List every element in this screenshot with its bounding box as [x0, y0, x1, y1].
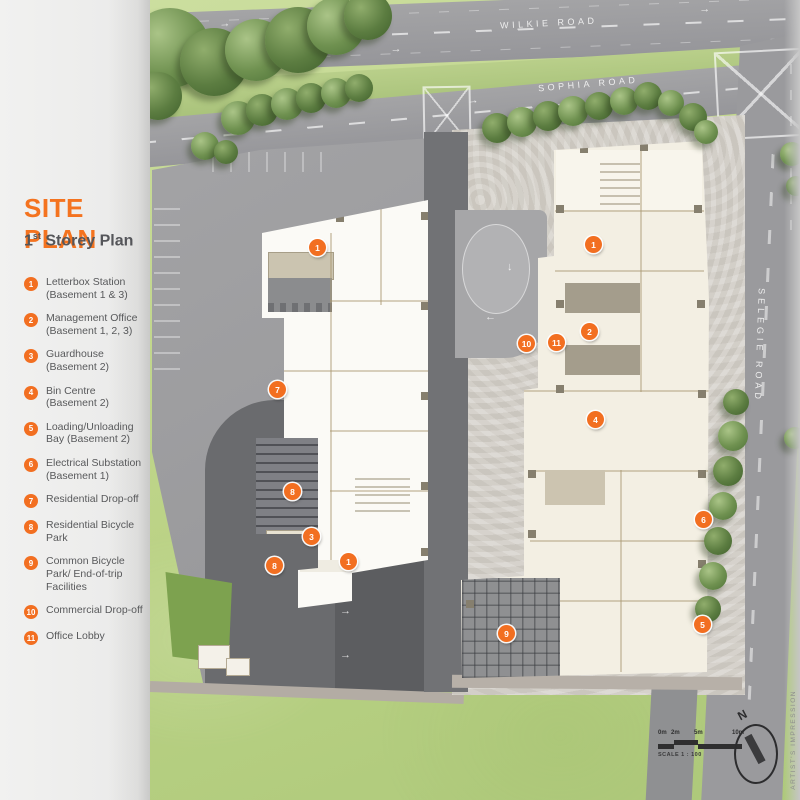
- plan-marker: 8: [266, 557, 283, 574]
- lane-arrow-icon: →: [699, 4, 710, 15]
- plan-marker: 3: [303, 528, 320, 545]
- subtitle-sup: st: [33, 231, 41, 241]
- legend-item: 10Commercial Drop-off: [24, 604, 144, 619]
- page-edge-gradient: [784, 0, 800, 800]
- north-compass: N: [730, 704, 782, 788]
- tree: [713, 456, 743, 486]
- plan-marker: 2: [581, 323, 598, 340]
- legend-badge: 7: [24, 494, 38, 508]
- tree: [704, 527, 732, 555]
- legend-label: Commercial Drop-off: [46, 604, 144, 617]
- legend-badge: 9: [24, 556, 38, 570]
- subtitle-prefix: 1: [24, 232, 33, 249]
- legend-label: Guardhouse (Basement 2): [46, 348, 144, 373]
- legend-label: Electrical Substation (Basement 1): [46, 457, 144, 482]
- legend-label: Letterbox Station (Basement 1 & 3): [46, 276, 144, 301]
- legend-badge: 4: [24, 386, 38, 400]
- plan-marker: 1: [340, 553, 357, 570]
- legend-item: 4Bin Centre (Basement 2): [24, 385, 144, 410]
- legend-item: 1Letterbox Station (Basement 1 & 3): [24, 276, 144, 301]
- tree: [723, 389, 749, 415]
- tree: [558, 96, 588, 126]
- plan-marker: 5: [694, 616, 711, 633]
- legend-item: 5Loading/Unloading Bay (Basement 2): [24, 421, 144, 446]
- legend-label: Residential Drop-off: [46, 493, 144, 506]
- stair-core: [545, 470, 605, 505]
- lift-core: [565, 283, 640, 313]
- legend-label: Common Bicycle Park/ End-of-trip Facilit…: [46, 555, 144, 593]
- scale-tick: 2m: [671, 730, 680, 736]
- legend-label: Loading/Unloading Bay (Basement 2): [46, 421, 144, 446]
- plan-marker: 1: [309, 239, 326, 256]
- tree: [718, 421, 748, 451]
- parking-stalls: [154, 200, 180, 370]
- plan-marker: 8: [284, 483, 301, 500]
- tree: [585, 92, 613, 120]
- legend-badge: 11: [24, 631, 38, 645]
- tree: [694, 120, 718, 144]
- letterbox-canopy: [268, 252, 334, 280]
- plan-marker: 1: [585, 236, 602, 253]
- legend-badge: 5: [24, 422, 38, 436]
- legend-label: Office Lobby: [46, 630, 144, 643]
- legend-label: Residential Bicycle Park: [46, 519, 144, 544]
- legend-item: 6Electrical Substation (Basement 1): [24, 457, 144, 482]
- legend-list: 1Letterbox Station (Basement 1 & 3) 2Man…: [24, 276, 144, 645]
- plan-marker: 10: [518, 335, 535, 352]
- scale-tick: 0m: [658, 730, 667, 736]
- artists-impression-note: ARTIST'S IMPRESSION: [790, 690, 797, 790]
- legend-label: Management Office (Basement 1, 2, 3): [46, 312, 144, 337]
- subtitle-rest: Storey Plan: [41, 232, 133, 249]
- plan-marker: 7: [269, 381, 286, 398]
- lift-core: [565, 345, 640, 375]
- plan-marker: 6: [695, 511, 712, 528]
- legend-badge: 6: [24, 458, 38, 472]
- legend-badge: 1: [24, 277, 38, 291]
- legend-badge: 2: [24, 313, 38, 327]
- legend-badge: 8: [24, 520, 38, 534]
- plan-marker: 4: [587, 411, 604, 428]
- driveway-arrow-icon: ←: [485, 312, 496, 323]
- legend-badge: 3: [24, 349, 38, 363]
- legend-item: 11Office Lobby: [24, 630, 144, 645]
- scale-tick: 5m: [694, 730, 703, 736]
- driveway-arrow-icon: →: [340, 650, 351, 661]
- tree: [345, 74, 373, 102]
- legend-item: 7Residential Drop-off: [24, 493, 144, 508]
- plan-marker: 9: [498, 625, 515, 642]
- tree: [699, 562, 727, 590]
- legend-item: 9Common Bicycle Park/ End-of-trip Facili…: [24, 555, 144, 593]
- plan-marker: 11: [548, 334, 565, 351]
- tree: [709, 492, 737, 520]
- entrance-canopy: [268, 278, 332, 312]
- page-subtitle: 1st Storey Plan: [24, 231, 133, 250]
- legend-label: Bin Centre (Basement 2): [46, 385, 144, 410]
- tree: [214, 140, 238, 164]
- legend-item: 3Guardhouse (Basement 2): [24, 348, 144, 373]
- corner-structure: [226, 658, 250, 676]
- dropoff-island: [462, 224, 530, 314]
- commercial-dropoff-driveway: ↓ ←: [455, 210, 547, 358]
- legend-item: 8Residential Bicycle Park: [24, 519, 144, 544]
- driveway-arrow-icon: →: [340, 606, 351, 617]
- north-label: N: [735, 707, 749, 723]
- site-plan-page: → → → → ↰ → → → ↓ ←: [0, 0, 800, 800]
- legend-item: 2Management Office (Basement 1, 2, 3): [24, 312, 144, 337]
- driveway-arrow-icon: ↓: [507, 262, 513, 273]
- legend-panel: SITE PLAN 1st Storey Plan 1Letterbox Sta…: [0, 0, 150, 800]
- legend-badge: 10: [24, 605, 38, 619]
- lane-arrow-icon: →: [390, 44, 401, 55]
